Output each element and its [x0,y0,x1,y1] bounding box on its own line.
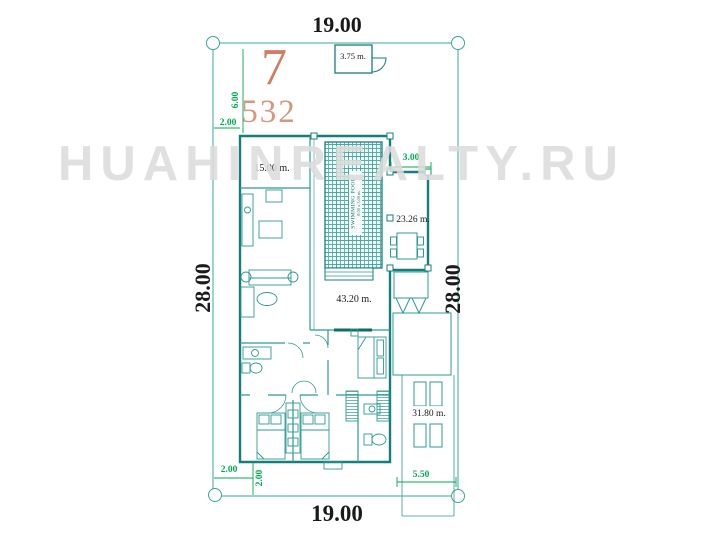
house-number-label: 7 [261,39,287,96]
kitchen-sink [245,207,251,213]
pillow [377,340,384,356]
pool-size-label: 8.00 x 3.00 m. [356,190,361,215]
pergola-column [414,382,426,406]
pool-steps [325,268,373,280]
pergola-column [430,382,442,406]
pillow [259,415,269,424]
pillow [315,415,325,424]
wall-post [387,265,393,271]
blanket-fold [358,337,366,350]
sofa-seat [249,278,291,285]
wall-post [425,265,431,271]
carport-area-label: 31.80 m. [412,409,446,419]
gatehouse-area-label: 3.75 m. [340,51,366,61]
chair [418,249,424,257]
twin-bedrooms-furniture [257,403,342,469]
driveway-lines [402,375,454,516]
setback-bottom-left-h-label: 2.00 [221,465,238,475]
area-number-label: 532 [241,94,297,130]
wall-post [387,215,393,221]
floor-plan-drawing: SWIMMING POOL 8.00 x 3.00 m. [0,0,720,540]
closet [377,391,389,421]
chair [418,237,424,245]
lot-height-left-label: 28.00 [190,263,215,313]
corner-marker-bottom-left [209,489,222,502]
corner-marker-top-left [207,37,220,50]
coffee-table [257,293,277,306]
pillow [271,415,281,424]
dining-table [397,233,417,259]
lot-width-bottom-label: 19.00 [311,501,363,526]
kitchen-cabinet [266,190,282,202]
sofa-back [249,270,291,278]
chair [391,249,397,257]
dining-terrace [394,272,428,298]
sink [252,350,259,357]
setback-left-horizontal-label: 2.00 [220,118,237,128]
closet [346,391,358,421]
plot-number-labels: 7 532 [241,39,297,130]
double-door [394,298,428,313]
side-table [241,272,251,282]
corner-marker-top-right [452,37,465,50]
door-swings [268,335,328,413]
living-room-furniture [241,270,298,317]
setback-bottom-left-v-label: 2.00 [255,469,265,486]
toilet-bowl [250,363,262,373]
toilet-tank [364,434,372,445]
kitchen-island [259,221,282,238]
dining-room-area-label: 23.26 m. [396,215,430,225]
sink [369,406,375,412]
corner-marker-bottom-right [452,490,465,503]
vanity-counter [243,347,271,359]
chair [391,237,397,245]
pergola-column [414,424,426,447]
toilet-bowl [372,434,386,445]
side-table [288,272,298,282]
bathroom-2-fixtures [346,391,389,445]
watermark-text: HUAHINREALTY.RU [58,136,698,188]
pillow [377,358,384,374]
living-area-label: 43.20 m. [336,294,371,305]
lot-height-right-label: 28.00 [440,264,465,314]
kitchen-furniture [242,190,282,246]
bedroom-3-furniture [351,329,386,378]
pergola-column [430,424,442,447]
kitchen-counter [242,194,253,246]
bathroom-1-fixtures [242,347,271,373]
lot-width-top-label: 19.00 [312,12,362,37]
floor-plan-page: SWIMMING POOL 8.00 x 3.00 m. [0,0,720,540]
chaise [241,287,254,317]
driveway-width-label: 5.50 [413,470,430,480]
gatehouse-door-swing [372,58,386,72]
terrace [393,313,451,375]
setback-left-vertical-label: 6.00 [231,91,241,108]
pillow [303,415,313,424]
toilet-tank [242,363,250,373]
